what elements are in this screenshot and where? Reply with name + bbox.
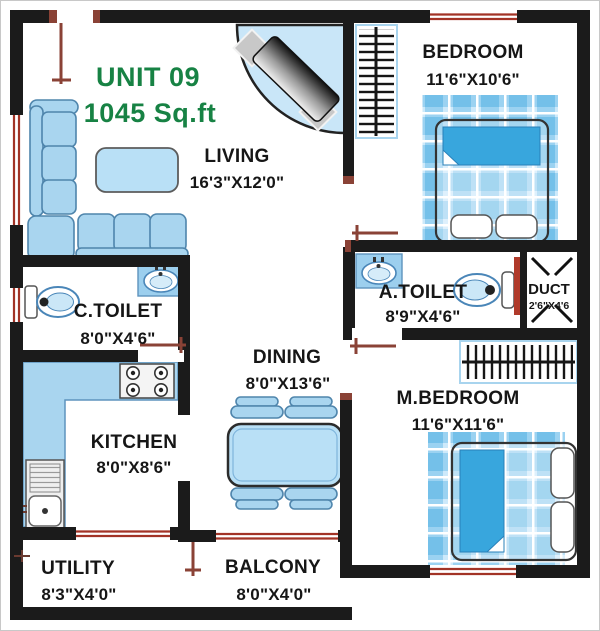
balcony-dims: 8'0"X4'0" xyxy=(236,585,311,604)
dining-label: DINING xyxy=(253,347,321,368)
wall-atoilet-duct xyxy=(520,252,527,328)
mbedroom-wardrobe xyxy=(460,341,577,383)
duct-vent xyxy=(514,257,520,315)
mbedroom-label: M.BEDROOM xyxy=(396,388,519,409)
wall-ctoilet-top xyxy=(23,255,190,267)
coffee-table xyxy=(96,148,178,192)
mbedroom-window xyxy=(430,565,516,578)
utility-label: UTILITY xyxy=(41,558,115,579)
wall-bedroom-atoilet xyxy=(345,240,590,252)
utility-dims: 8'3"X4'0" xyxy=(41,585,116,604)
mbedroom-dims: 11'6"X11'6" xyxy=(412,415,505,434)
entry-side-door-opening xyxy=(57,10,93,23)
atoilet-label: A.TOILET xyxy=(379,282,468,303)
bedroom-dims: 11'6"X10'6" xyxy=(426,70,520,89)
ctoilet-label: C.TOILET xyxy=(74,301,163,322)
pillow xyxy=(551,448,574,498)
mbedroom-bed xyxy=(428,432,576,565)
ctoilet-door-opening xyxy=(138,350,184,362)
dining-table xyxy=(228,424,342,486)
duct-label: DUCT xyxy=(528,281,570,298)
duct-dims: 2'6"X4'6 xyxy=(529,300,569,312)
balcony-slider-window xyxy=(216,530,338,542)
balcony-label: BALCONY xyxy=(225,557,321,578)
floor-plan: UNIT 09 1045 Sq.ft LIVING 16'3"X12'0" BE… xyxy=(0,0,600,631)
pillow xyxy=(496,215,537,238)
atoilet-door-opening xyxy=(352,328,402,340)
unit-area: 1045 Sq.ft xyxy=(84,98,217,128)
dining-set xyxy=(228,397,342,509)
bedroom-label: BEDROOM xyxy=(422,42,523,63)
living-dims: 16'3"X12'0" xyxy=(190,173,284,192)
ctoilet-window xyxy=(10,288,23,322)
unit-title: UNIT 09 xyxy=(96,62,200,92)
blanket xyxy=(460,450,504,552)
kitchen-dims: 8'0"X8'6" xyxy=(96,458,171,477)
pillow xyxy=(551,502,574,552)
atoilet-dims: 8'9"X4'6" xyxy=(385,307,460,326)
wall-living-bedroom xyxy=(343,23,354,183)
living-label: LIVING xyxy=(204,146,269,167)
floor-plan-image: UNIT 09 1045 Sq.ft LIVING 16'3"X12'0" BE… xyxy=(0,0,600,631)
wall-mbedroom-left xyxy=(340,393,352,578)
ctoilet-wc xyxy=(25,286,79,318)
bedroom-window xyxy=(430,10,517,23)
kitchen-window xyxy=(76,527,170,540)
bedroom-wardrobe xyxy=(356,25,397,138)
dining-dims: 8'0"X13'6" xyxy=(246,374,331,393)
ctoilet-basin xyxy=(138,262,184,296)
stove xyxy=(120,364,174,398)
blanket xyxy=(443,127,540,165)
kitchen-label: KITCHEN xyxy=(91,432,178,453)
living-window xyxy=(10,115,23,225)
bedroom-bed xyxy=(422,95,558,242)
pillow xyxy=(451,215,492,238)
ctoilet-dims: 8'0"X4'6" xyxy=(80,329,155,348)
